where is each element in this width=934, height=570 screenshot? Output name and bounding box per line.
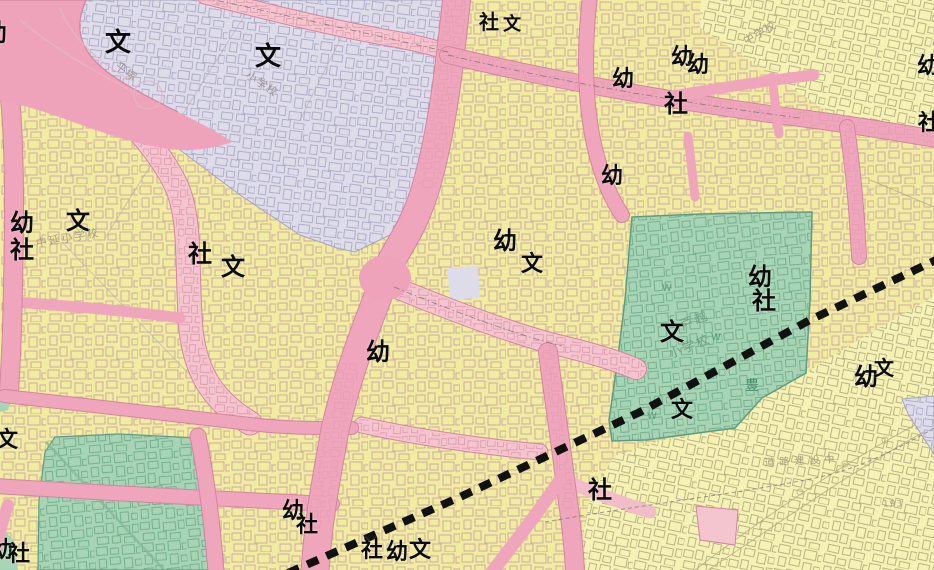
basemap-svg: [0, 0, 934, 570]
map-canvas[interactable]: 幼文文社文幼幼幼社幼幼社幼社文社文幼文幼幼社文文幼文社幼社社幼文幼社文 平塚小学…: [0, 0, 934, 570]
